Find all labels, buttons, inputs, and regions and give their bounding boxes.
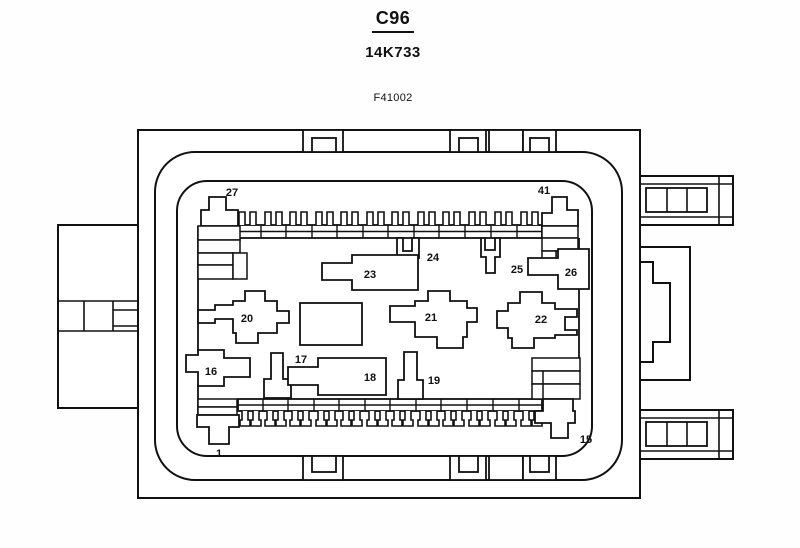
terminal-label-27: 27 xyxy=(226,187,238,199)
terminal-label-21: 21 xyxy=(425,312,437,324)
right-latch-arm-bottom xyxy=(640,410,733,459)
terminal-label-20: 20 xyxy=(241,313,253,325)
terminal-label-23: 23 xyxy=(364,269,376,281)
right-center-bracket xyxy=(640,247,690,380)
terminal-label-16: 16 xyxy=(205,366,217,378)
right-latch-arm-top xyxy=(640,176,733,225)
terminal-label-17: 17 xyxy=(295,354,307,366)
terminal-label-19: 19 xyxy=(428,375,440,387)
terminal-label-26: 26 xyxy=(565,267,577,279)
page: C96 14K733 F41002 xyxy=(0,0,800,548)
terminal-label-15: 15 xyxy=(580,434,592,446)
terminal-label-24: 24 xyxy=(427,252,440,264)
left-mount-bracket xyxy=(58,225,138,408)
terminal-label-22: 22 xyxy=(535,314,547,326)
terminal-label-18: 18 xyxy=(364,372,376,384)
connector-diagram: 27 41 24 25 26 23 20 21 22 16 17 18 19 1… xyxy=(0,0,800,548)
terminal-label-25: 25 xyxy=(511,264,523,276)
terminal-label-1: 1 xyxy=(216,448,222,460)
terminal-label-41: 41 xyxy=(538,185,550,197)
center-cavity xyxy=(300,303,362,345)
